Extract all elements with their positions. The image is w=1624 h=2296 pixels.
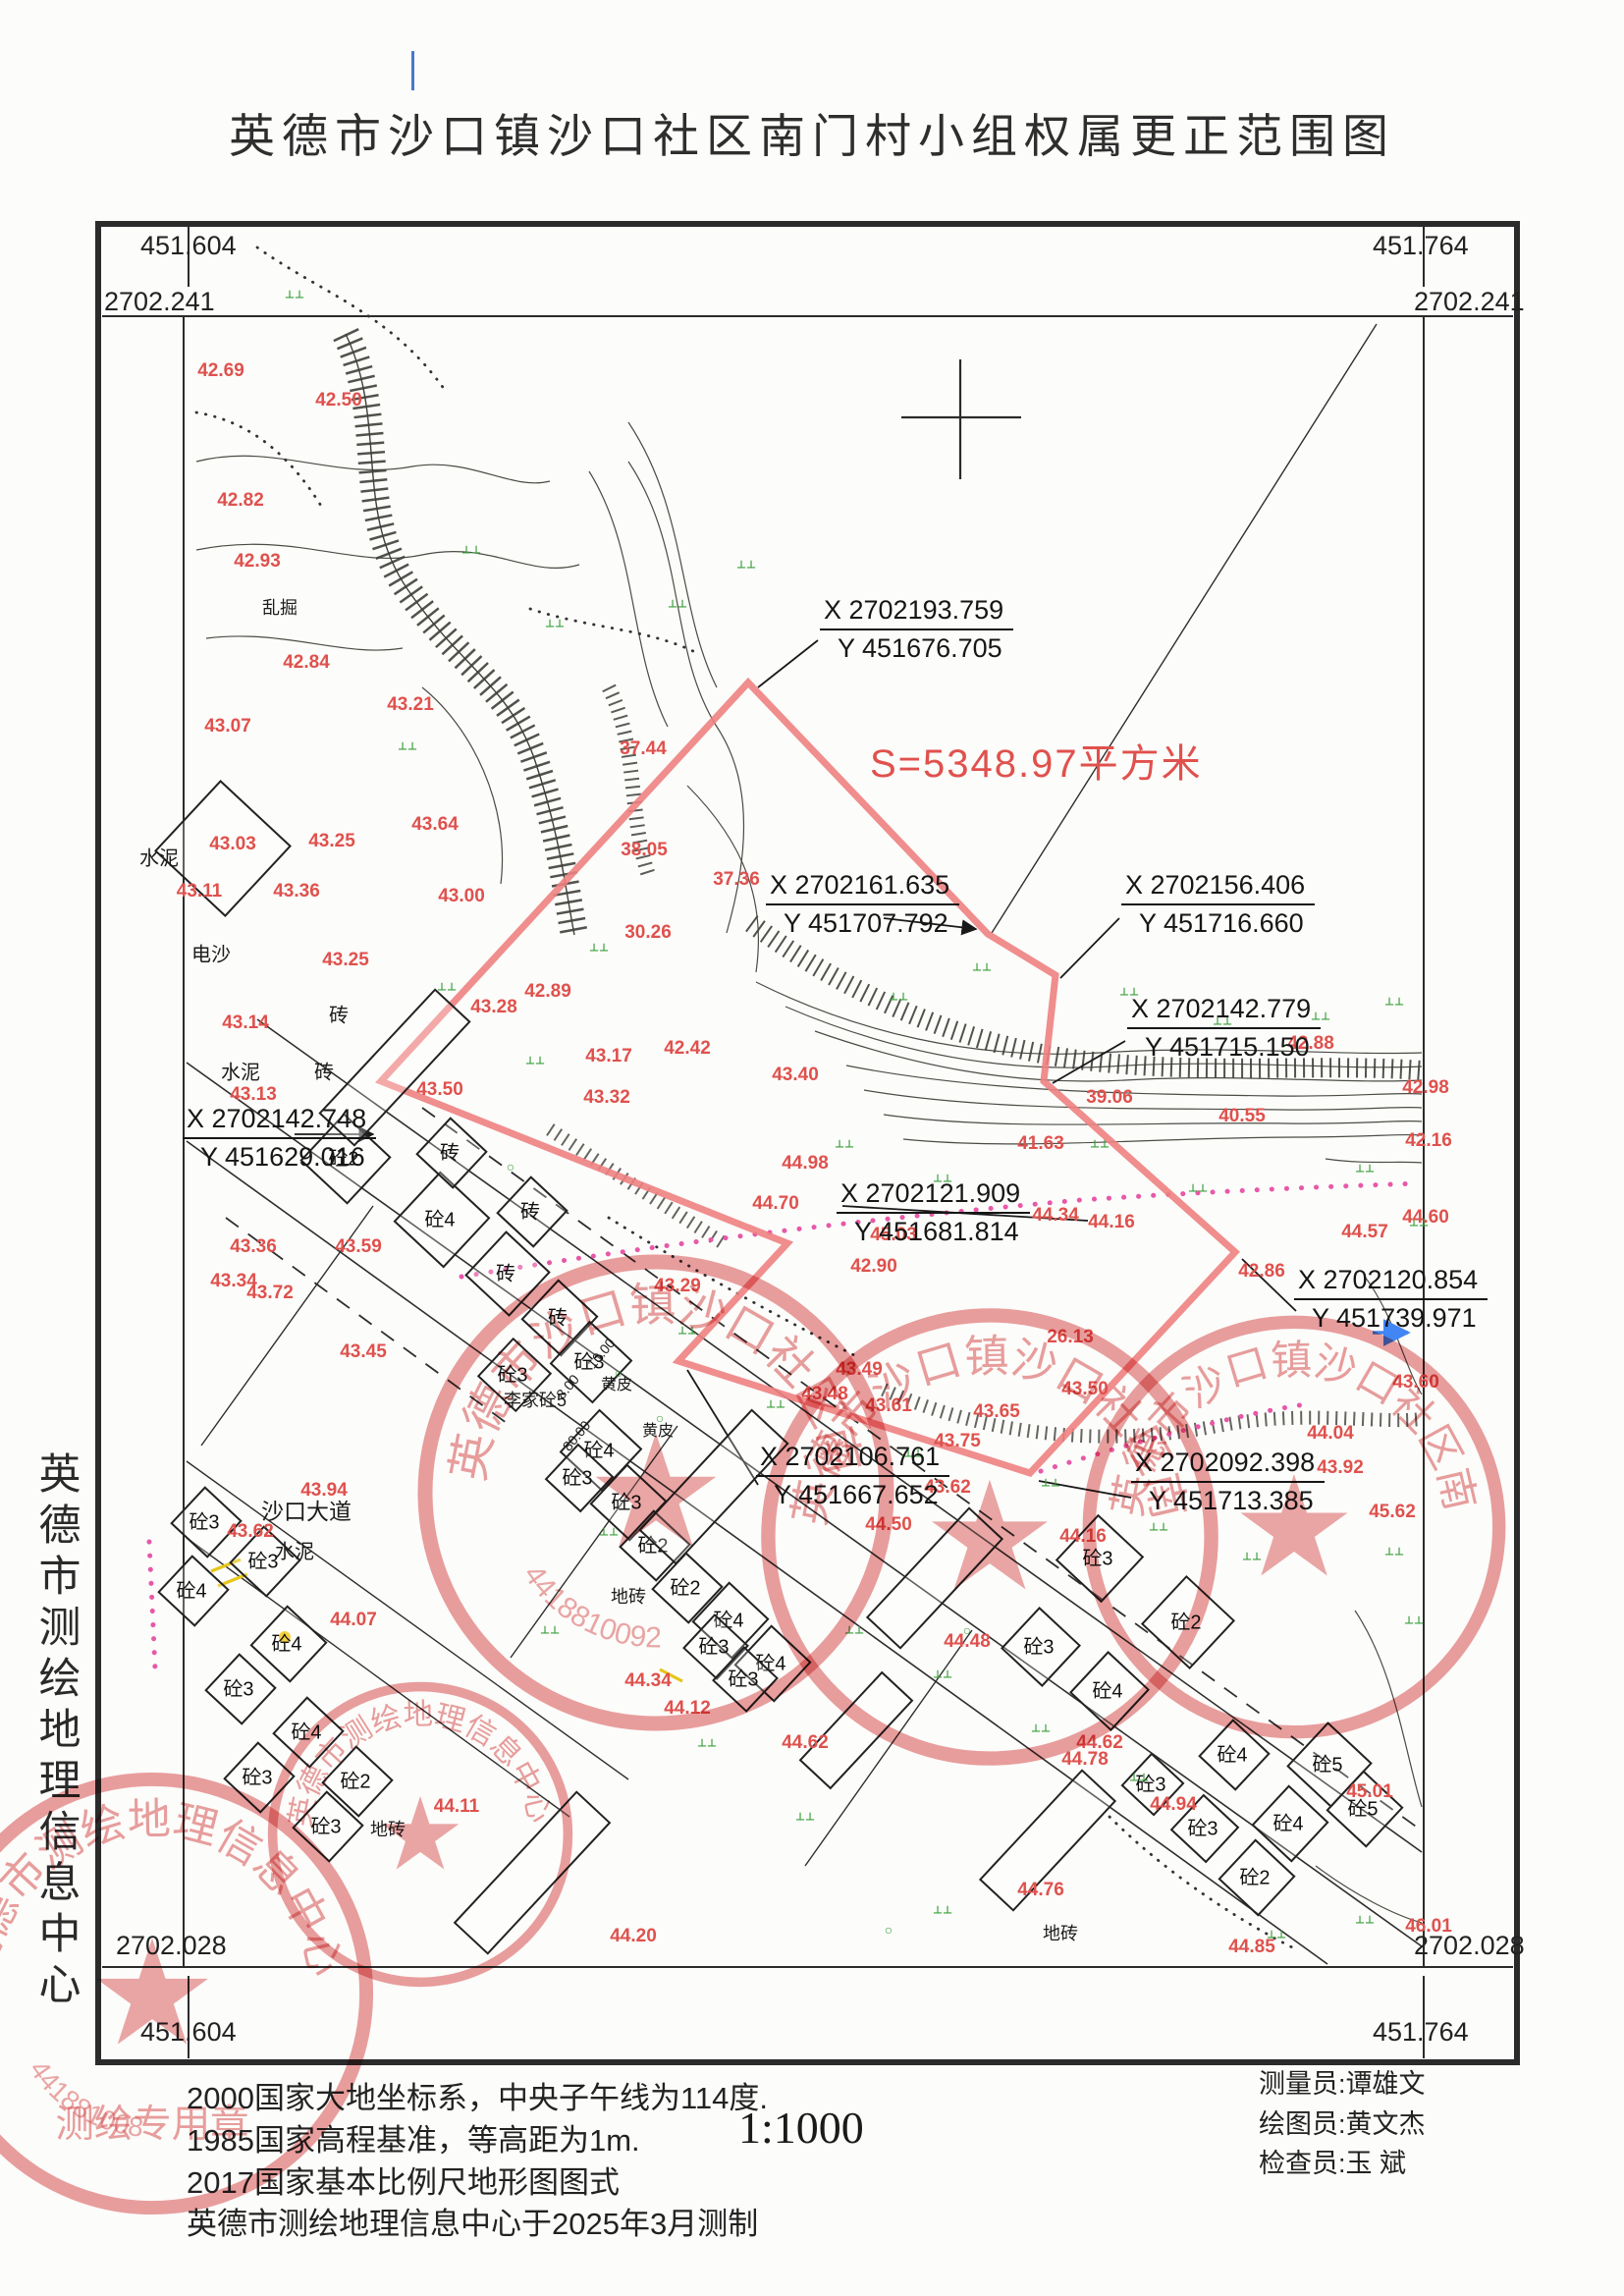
- spot-elevation: 43.64: [411, 814, 459, 836]
- spot-elevation: 44.98: [782, 1153, 829, 1175]
- drafter-credit: 绘图员:黄文杰: [1259, 2105, 1426, 2145]
- map-notes: 2000国家大地坐标系，中央子午线为114度. 1985国家高程基准，等高距为1…: [187, 2078, 768, 2246]
- vegetation-icon: ⊥⊥: [1384, 996, 1404, 1009]
- spot-elevation: 43.65: [973, 1401, 1020, 1423]
- coordinate-callout: X 2702142.779 Y 451715.150: [1127, 994, 1321, 1063]
- building-footprint: 砼3: [181, 1497, 228, 1544]
- spot-elevation: 43.72: [246, 1283, 294, 1304]
- spot-elevation: 40.55: [1218, 1106, 1266, 1127]
- building-material-label: 砼3: [189, 1506, 219, 1535]
- map-text-label: 电沙: [191, 939, 231, 967]
- callout-x-value: X 2702120.854: [1294, 1265, 1488, 1300]
- spot-elevation: 43.17: [585, 1046, 632, 1067]
- callout-y-value: Y 451707.792: [766, 905, 959, 939]
- vegetation-icon: ⊥⊥: [540, 1624, 560, 1637]
- map-text-label: 地砖: [370, 1816, 406, 1841]
- callout-y-value: Y 451739.971: [1294, 1300, 1488, 1334]
- building-material-label: 砼3: [497, 1359, 527, 1388]
- building-footprint: 砼3: [555, 1453, 600, 1499]
- spot-elevation: 43.36: [230, 1236, 277, 1258]
- spot-elevation: 43.11: [177, 881, 223, 902]
- map-text-label: 水泥: [275, 1536, 314, 1564]
- spot-elevation: 30.26: [624, 922, 672, 944]
- parcel-area-label: S=5348.97平方米: [870, 732, 1203, 789]
- spot-elevation: 43.07: [204, 716, 251, 738]
- coordinate-callout: X 2702106.761 Y 451667.652: [756, 1442, 949, 1510]
- building-footprint: 砼2: [1155, 1589, 1218, 1652]
- spot-elevation: 43.48: [801, 1384, 848, 1405]
- spot-elevation: 43.25: [308, 831, 355, 852]
- vegetation-icon: ⊥⊥: [599, 1526, 619, 1539]
- vegetation-icon: ⊥⊥: [437, 981, 457, 994]
- spot-elevation: 42.69: [197, 360, 244, 382]
- coordinate-callout: X 2702120.854 Y 451739.971: [1294, 1265, 1488, 1334]
- building-footprint: 砼4: [407, 1185, 472, 1250]
- map-text-label: 沙口大道: [261, 1493, 352, 1526]
- map-text-label: 黄皮: [601, 1371, 632, 1394]
- note-height-datum: 1985国家高程基准，等高距为1m.: [187, 2120, 768, 2162]
- spot-elevation: 44.34: [1032, 1205, 1079, 1227]
- map-text-label: 水泥: [139, 843, 179, 871]
- vegetation-icon: ⊥⊥: [844, 1624, 864, 1637]
- vegetation-icon: ⊥⊥: [697, 1737, 717, 1750]
- spot-elevation: 42.89: [524, 981, 571, 1003]
- spot-elevation: 43.28: [470, 997, 517, 1018]
- vegetation-icon: ⊥⊥: [1404, 1614, 1424, 1627]
- checker-credit: 检查员:玉 斌: [1259, 2144, 1426, 2184]
- spot-elevation: 42.93: [234, 551, 281, 573]
- spot-elevation: 42.16: [1405, 1130, 1452, 1152]
- vegetation-icon: ⊥⊥: [1031, 1722, 1051, 1735]
- tree-icon: ○: [507, 1159, 514, 1175]
- spot-elevation: 44.57: [1341, 1222, 1388, 1243]
- map-text-label: 黄皮: [642, 1417, 674, 1441]
- callout-y-value: Y 451715.150: [1127, 1029, 1321, 1063]
- building-footprint: 砼3: [302, 1801, 350, 1848]
- spot-elevation: 43.60: [1392, 1372, 1439, 1394]
- grid-cross-icon: [901, 359, 1021, 479]
- blue-tick-mark: [411, 51, 414, 90]
- building-footprint: 砼2: [332, 1756, 379, 1803]
- spot-elevation: 26.13: [1047, 1327, 1094, 1348]
- survey-map-page: 英德市沙口镇沙口社区南门村小组权属更正范围图 451.604 2702.241 …: [0, 0, 1624, 2296]
- building-material-label: 砖: [440, 1137, 460, 1166]
- spot-elevation: 43.50: [416, 1079, 463, 1101]
- map-text-label: 地砖: [1043, 1920, 1078, 1945]
- callout-y-value: Y 451629.016: [183, 1139, 376, 1173]
- corner-coord-bottom-left-northing: 2702.028: [116, 1931, 227, 1961]
- spot-elevation: 43.32: [583, 1087, 630, 1109]
- building-footprint: 砼3: [234, 1752, 281, 1799]
- spot-elevation: 43.03: [209, 834, 256, 855]
- building-material-label: 砼4: [1217, 1739, 1247, 1768]
- vegetation-icon: ⊥⊥: [795, 1811, 815, 1824]
- building-material-label: 砼2: [340, 1766, 370, 1794]
- building-material-label: 砼2: [670, 1572, 700, 1601]
- map-text-label: 乱掘: [262, 594, 298, 620]
- building-material-label: 砖: [496, 1258, 515, 1286]
- spot-elevation: 44.62: [782, 1732, 829, 1754]
- spot-elevation: 39.06: [1086, 1087, 1133, 1109]
- spot-elevation: 43.45: [340, 1341, 387, 1363]
- building-material-label: 砼2: [1170, 1607, 1201, 1635]
- building-footprint: [972, 1817, 1119, 1860]
- building-footprint: 砼2: [662, 1562, 709, 1610]
- spot-elevation: 44.94: [1150, 1794, 1197, 1816]
- corner-coord-top-right-northing: 2702.241: [1414, 287, 1525, 317]
- building-footprint: 砼4: [1209, 1729, 1256, 1777]
- building-footprint: 砼4: [261, 1616, 312, 1667]
- building-footprint: 砼3: [722, 1656, 765, 1699]
- spot-elevation: 44.34: [624, 1670, 672, 1692]
- spot-elevation: 44.12: [664, 1698, 711, 1720]
- vegetation-icon: ⊥⊥: [766, 1398, 785, 1411]
- vegetation-icon: ⊥⊥: [525, 1055, 545, 1067]
- spot-elevation: 44.50: [865, 1514, 912, 1536]
- vegetation-icon: ⊥⊥: [1355, 1914, 1375, 1927]
- building-material-label: 砼4: [1272, 1808, 1303, 1836]
- vegetation-icon: ⊥⊥: [835, 1138, 854, 1151]
- building-material-label: 砼3: [1187, 1813, 1218, 1841]
- map-text-label: 砖: [314, 1057, 334, 1085]
- vegetation-icon: ⊥⊥: [889, 991, 908, 1004]
- note-datum: 2000国家大地坐标系，中央子午线为114度.: [187, 2078, 768, 2120]
- callout-x-value: X 2702142.779: [1127, 994, 1321, 1029]
- callout-y-value: Y 451713.385: [1131, 1483, 1325, 1516]
- building-material-label: 砼4: [176, 1575, 206, 1604]
- coordinate-callout: X 2702161.635 Y 451707.792: [766, 870, 959, 939]
- spot-elevation: 42.98: [1402, 1077, 1449, 1099]
- callout-x-value: X 2702161.635: [766, 870, 959, 905]
- callout-x-value: X 2702156.406: [1121, 870, 1315, 905]
- spot-elevation: 45.62: [1369, 1502, 1416, 1523]
- building-footprint: 砼4: [283, 1707, 330, 1754]
- spot-elevation: 43.40: [772, 1065, 819, 1086]
- spot-elevation: 42.86: [1238, 1261, 1285, 1283]
- vegetation-icon: ⊥⊥: [1384, 1546, 1404, 1558]
- spot-elevation: 44.60: [1402, 1207, 1449, 1229]
- spot-elevation: 44.16: [1059, 1526, 1107, 1548]
- coordinate-callout: X 2702156.406 Y 451716.660: [1121, 870, 1315, 939]
- note-symbology: 2017国家基本比例尺地形图图式: [187, 2162, 768, 2205]
- building-material-label: 砼4: [291, 1717, 321, 1745]
- corner-coord-top-right-easting: 451.764: [1373, 231, 1469, 261]
- building-material-label: 砼5: [1312, 1749, 1342, 1777]
- building-material-label: 砼3: [247, 1546, 278, 1574]
- corner-coord-bottom-right-easting: 451.764: [1373, 2017, 1469, 2048]
- surveyor-credit: 测量员:谭雄文: [1259, 2064, 1426, 2105]
- building-material-label: 砼4: [424, 1204, 455, 1232]
- spot-elevation: 43.21: [387, 694, 434, 716]
- callout-x-value: X 2702121.909: [837, 1178, 1030, 1214]
- spot-elevation: 37.36: [713, 869, 760, 891]
- vegetation-icon: ⊥⊥: [933, 1904, 952, 1917]
- vegetation-icon: ⊥⊥: [461, 544, 481, 557]
- tree-icon: ○: [885, 1922, 893, 1938]
- spot-elevation: 43.36: [273, 881, 320, 902]
- building-material-label: 砼3: [310, 1811, 341, 1839]
- credits-block: 测量员:谭雄文 绘图员:黄文杰 检查员:玉 斌: [1259, 2064, 1426, 2184]
- spot-elevation: 44.78: [1061, 1749, 1109, 1771]
- vegetation-icon: ⊥⊥: [972, 961, 992, 974]
- spot-elevation: 44.76: [1017, 1880, 1064, 1901]
- callout-x-value: X 2702106.761: [756, 1442, 949, 1477]
- building-footprint: [859, 1555, 1006, 1598]
- corner-coord-top-left-easting: 451.604: [140, 231, 237, 261]
- building-footprint: 砖: [426, 1127, 473, 1175]
- coordinate-callout: X 2702092.398 Y 451713.385: [1131, 1448, 1325, 1516]
- building-material-label: 砼4: [271, 1628, 301, 1657]
- spot-elevation: 42.84: [283, 652, 330, 674]
- vegetation-icon: ⊥⊥: [1129, 1772, 1149, 1784]
- spot-elevation: 41.63: [1017, 1133, 1064, 1155]
- building-footprint: 砼4: [168, 1565, 215, 1613]
- callout-x-value: X 2702092.398: [1131, 1448, 1325, 1483]
- spot-elevation: 45.01: [1346, 1781, 1393, 1803]
- spot-elevation: 42.90: [850, 1256, 897, 1278]
- spot-elevation: 43.59: [335, 1236, 382, 1258]
- spot-elevation: 43.25: [322, 950, 369, 971]
- coordinate-callout: X 2702142.748 Y 451629.016: [183, 1104, 376, 1173]
- building-material-label: 砼3: [562, 1462, 592, 1491]
- callout-x-value: X 2702193.759: [820, 595, 1013, 630]
- building-footprint: 砼2: [1229, 1850, 1280, 1901]
- building-material-label: 砼3: [223, 1673, 253, 1702]
- vegetation-icon: ⊥⊥: [398, 740, 417, 753]
- building-material-label: 砼4: [1092, 1675, 1122, 1704]
- spot-elevation: 43.50: [1061, 1379, 1109, 1400]
- spot-elevation: 46.01: [1405, 1916, 1452, 1938]
- spot-elevation: 44.16: [1088, 1212, 1135, 1233]
- vegetation-icon: ⊥⊥: [736, 559, 756, 572]
- map-scale: 1:1000: [738, 2102, 864, 2154]
- building-footprint: 砼3: [1012, 1618, 1065, 1671]
- vegetation-icon: ⊥⊥: [1188, 1182, 1208, 1195]
- building-material-label: 砖: [520, 1196, 540, 1225]
- note-production: 英德市测绘地理信息中心于2025年3月测制: [187, 2204, 768, 2246]
- spot-elevation: 43.00: [438, 886, 485, 907]
- corner-coord-top-left-northing: 2702.241: [104, 287, 215, 317]
- callout-y-value: Y 451716.660: [1121, 905, 1315, 939]
- vegetation-icon: ⊥⊥: [1355, 1163, 1375, 1175]
- spot-elevation: 43.29: [654, 1276, 701, 1297]
- spot-elevation: 37.44: [620, 738, 667, 760]
- spot-elevation: 44.85: [1228, 1937, 1275, 1958]
- spot-elevation: 44.20: [610, 1926, 657, 1947]
- spot-elevation: 44.11: [434, 1796, 480, 1818]
- spot-elevation: 43.14: [222, 1012, 269, 1034]
- spot-elevation: 43.13: [230, 1084, 277, 1106]
- building-material-label: 砼3: [728, 1664, 758, 1692]
- building-material-label: 砼2: [1239, 1862, 1270, 1890]
- map-text-label: 地砖: [611, 1583, 646, 1609]
- vegetation-icon: ⊥⊥: [1149, 1521, 1168, 1534]
- building-footprint: [442, 1849, 619, 1892]
- building-material-label: 砖: [548, 1302, 568, 1331]
- vegetation-icon: ⊥⊥: [589, 942, 609, 955]
- vegetation-icon: ⊥⊥: [545, 618, 565, 630]
- building-footprint: 砼3: [215, 1664, 262, 1711]
- building-material-label: 砼3: [242, 1762, 272, 1790]
- callout-y-value: Y 451681.814: [837, 1214, 1030, 1247]
- map-text-label: 水泥: [221, 1057, 260, 1085]
- callout-y-value: Y 451667.652: [756, 1477, 949, 1510]
- spot-elevation: 44.70: [752, 1193, 799, 1215]
- spot-elevation: 42.42: [664, 1038, 711, 1060]
- agency-vertical-title: 英德市测绘地理信息中心: [26, 1451, 86, 2013]
- spot-elevation: 43.49: [836, 1359, 883, 1381]
- building-footprint: 砖: [507, 1186, 554, 1233]
- vegetation-icon: ⊥⊥: [677, 1325, 697, 1338]
- building-footprint: 砼4: [1263, 1796, 1314, 1847]
- vegetation-icon: ⊥⊥: [1041, 1477, 1060, 1490]
- callout-y-value: Y 451676.705: [820, 630, 1013, 664]
- spot-elevation: 38.05: [621, 840, 668, 861]
- spot-elevation: 44.04: [1307, 1423, 1354, 1445]
- vegetation-icon: ⊥⊥: [1090, 1138, 1110, 1151]
- vegetation-icon: ⊥⊥: [668, 598, 687, 611]
- coordinate-callout: X 2702121.909 Y 451681.814: [837, 1178, 1030, 1247]
- building-material-label: 砼3: [1023, 1631, 1054, 1660]
- map-text-label: 砖: [329, 1000, 349, 1028]
- spot-elevation: 42.50: [315, 390, 362, 411]
- building-footprint: 砖: [477, 1243, 534, 1300]
- spot-elevation: 42.82: [217, 490, 264, 512]
- page-title: 英德市沙口镇沙口社区南门村小组权属更正范围图: [0, 98, 1624, 166]
- callout-x-value: X 2702142.748: [183, 1104, 376, 1139]
- vegetation-icon: ⊥⊥: [1242, 1551, 1262, 1563]
- coordinate-callout: X 2702193.759 Y 451676.705: [820, 595, 1013, 664]
- vegetation-icon: ⊥⊥: [933, 1668, 952, 1681]
- spot-elevation: 44.07: [330, 1610, 377, 1631]
- spot-elevation: 43.61: [865, 1395, 912, 1417]
- building-footprint: 砼4: [1081, 1663, 1134, 1716]
- vegetation-icon: ⊥⊥: [285, 289, 304, 301]
- spot-elevation: 44.48: [944, 1631, 991, 1653]
- corner-coord-bottom-left-easting: 451.604: [140, 2017, 237, 2048]
